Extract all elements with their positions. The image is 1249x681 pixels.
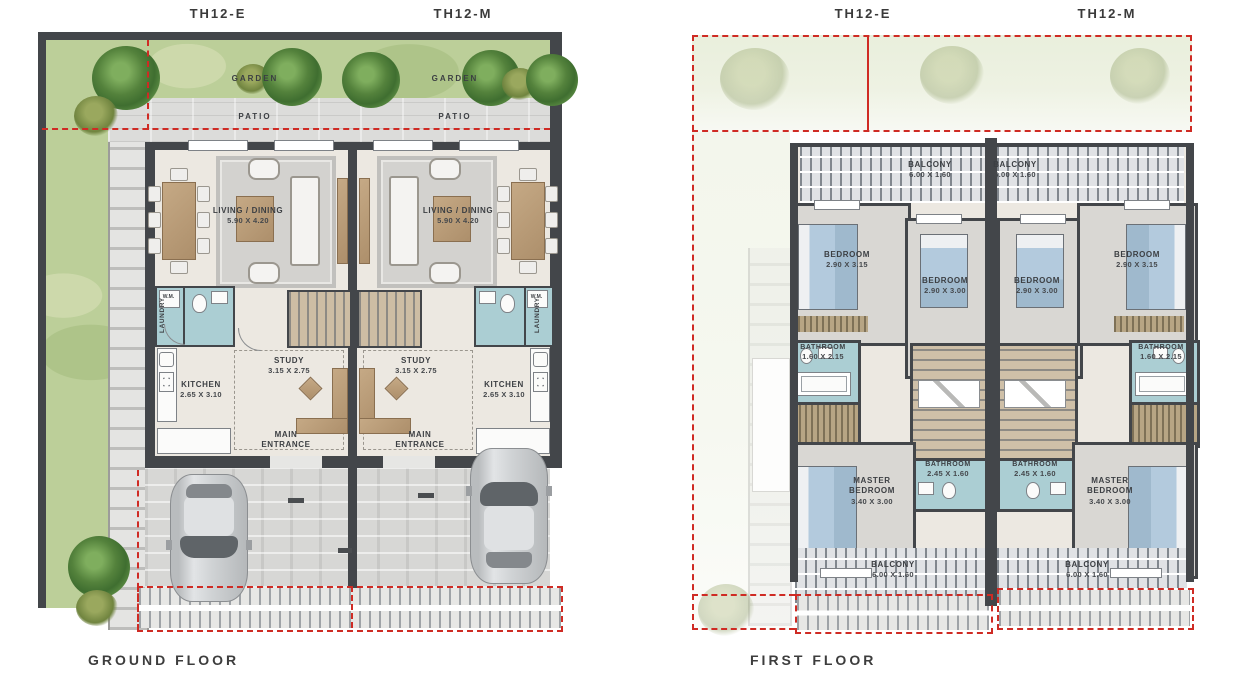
window xyxy=(1124,200,1170,210)
unit-title-first-right: TH12-M xyxy=(1072,6,1142,21)
room-dims: 1.60 X 2.15 xyxy=(786,352,860,362)
palm-tree-icon xyxy=(342,52,400,108)
room-label-study: STUDY 3.15 X 2.75 xyxy=(249,356,329,376)
window xyxy=(274,140,334,151)
window xyxy=(916,214,962,224)
room-name: BALCONY xyxy=(993,160,1037,169)
wall-top xyxy=(46,32,562,40)
wm-label: W.M. xyxy=(527,294,546,301)
window xyxy=(373,140,433,151)
room-label-bathroom-center: BATHROOM 2.45 X 1.60 xyxy=(999,460,1071,479)
room-label-bedroom-corner: BEDROOM 2.90 X 3.15 xyxy=(802,250,892,270)
room-dims: 2.45 X 1.60 xyxy=(912,469,984,479)
sink xyxy=(211,291,228,304)
room-name: BEDROOM xyxy=(1114,250,1160,259)
dining-chair xyxy=(519,168,537,181)
kitchen-counter xyxy=(157,428,231,454)
room-dims: 1.60 X 2.15 xyxy=(1124,352,1198,362)
room-dims: 6.00 X 1.60 xyxy=(885,170,975,180)
setback-boundary xyxy=(997,588,1194,630)
dining-chair xyxy=(170,261,188,274)
room-label-garden: GARDEN xyxy=(410,74,500,84)
room-name: MASTER BEDROOM xyxy=(1087,476,1133,495)
room-name: LIVING / DINING xyxy=(213,206,283,215)
stair-landing xyxy=(1004,380,1066,408)
unit-title-ground-left: TH12-E xyxy=(183,6,253,21)
toilet xyxy=(192,294,207,313)
dining-chair xyxy=(148,186,161,202)
car-roof xyxy=(184,496,234,536)
room-dims: 2.90 X 3.00 xyxy=(999,286,1075,296)
toilet xyxy=(500,294,515,313)
room-label-kitchen: KITCHEN 2.65 X 3.10 xyxy=(464,380,544,400)
bed xyxy=(920,234,968,308)
room-label-patio: PATIO xyxy=(410,112,500,122)
dining-chair xyxy=(148,212,161,228)
room-name: BEDROOM xyxy=(922,276,968,285)
floor-plan-sheet: GARDEN GARDEN PATIO PATIO LIVING / DININ… xyxy=(0,0,1249,681)
armchair xyxy=(429,158,461,180)
room-label-main-entrance: MAIN ENTRANCE xyxy=(260,430,312,451)
car-icon xyxy=(470,448,548,584)
wm-label: W.M. xyxy=(159,294,178,301)
room-label-main-entrance: MAIN ENTRANCE xyxy=(394,430,446,451)
room-label-master-bedroom: MASTER BEDROOM 3.40 X 3.00 xyxy=(1078,476,1142,507)
dining-table xyxy=(162,182,196,260)
dining-chair xyxy=(497,238,510,254)
room-label-living-dining: LIVING / DINING 5.90 X 4.20 xyxy=(408,206,508,226)
palm-tree-icon xyxy=(68,536,130,598)
room-label-bedroom-mid: BEDROOM 2.90 X 3.00 xyxy=(907,276,983,296)
unit-title-first-left: TH12-E xyxy=(828,6,898,21)
window xyxy=(814,200,860,210)
room-dims: 2.90 X 3.15 xyxy=(1092,260,1182,270)
bush-icon xyxy=(74,96,118,136)
room-dims: 2.65 X 3.10 xyxy=(464,390,544,400)
unit-divider-line xyxy=(867,35,869,132)
wall-party xyxy=(985,138,997,606)
bush-icon xyxy=(76,590,118,626)
dining-table xyxy=(511,182,545,260)
car-icon xyxy=(170,474,248,602)
paving-fleck xyxy=(288,498,304,503)
car-windshield xyxy=(480,482,538,506)
plot-boundary-line xyxy=(692,594,795,596)
setback-boundary xyxy=(137,586,563,632)
dining-chair xyxy=(545,186,558,202)
room-dims: 2.45 X 1.60 xyxy=(999,469,1071,479)
room-name: BALCONY xyxy=(1065,560,1109,569)
entrance-gap-left xyxy=(270,456,322,468)
window xyxy=(1020,214,1066,224)
room-label-bathroom-side: BATHROOM 1.60 X 2.15 xyxy=(1124,343,1198,362)
dining-chair xyxy=(519,261,537,274)
plot-boundary-line xyxy=(42,128,550,130)
room-dims: 3.15 X 2.75 xyxy=(376,366,456,376)
car-rear-window xyxy=(186,484,232,498)
paving-fleck xyxy=(338,548,352,553)
caption-first-floor: FIRST FLOOR xyxy=(750,652,876,668)
palm-tree-icon xyxy=(526,54,578,106)
car-rear-window xyxy=(486,552,532,568)
dining-chair xyxy=(545,238,558,254)
room-dims: 3.40 X 3.00 xyxy=(1078,497,1142,507)
car-mirror xyxy=(246,540,252,550)
window xyxy=(459,140,519,151)
plot-boundary-line xyxy=(692,35,694,630)
dining-chair xyxy=(545,212,558,228)
bathtub xyxy=(1135,372,1189,396)
kitchen-sink xyxy=(159,352,174,367)
room-dims: 6.00 X 1.60 xyxy=(1042,570,1132,580)
room-label-patio: PATIO xyxy=(210,112,300,122)
wall-house-right xyxy=(1186,145,1194,582)
room-name: BALCONY xyxy=(871,560,915,569)
room-dims: 2.90 X 3.00 xyxy=(907,286,983,296)
ghost-tree-icon xyxy=(920,46,984,104)
room-label-bathroom-side: BATHROOM 1.60 X 2.15 xyxy=(786,343,860,362)
room-name: BATHROOM xyxy=(1012,461,1058,468)
room-dims: 3.40 X 3.00 xyxy=(840,497,904,507)
ghost-tree-icon xyxy=(1110,48,1170,104)
room-label-master-bedroom: MASTER BEDROOM 3.40 X 3.00 xyxy=(840,476,904,507)
ghost-tree-icon xyxy=(720,48,790,110)
bed xyxy=(1016,234,1064,308)
car-mirror xyxy=(466,486,472,496)
room-dims: 3.15 X 2.75 xyxy=(249,366,329,376)
paving-fleck xyxy=(418,493,434,498)
room-label-kitchen: KITCHEN 2.65 X 3.10 xyxy=(161,380,241,400)
media-console xyxy=(337,178,348,264)
room-label-balcony: BALCONY 6.00 X 1.60 xyxy=(970,160,1060,180)
toilet xyxy=(1026,482,1040,499)
room-name: LIVING / DINING xyxy=(423,206,493,215)
staircase xyxy=(357,290,422,348)
room-dims: 2.65 X 3.10 xyxy=(161,390,241,400)
car-mirror xyxy=(546,486,552,496)
plot-boundary-line xyxy=(692,35,1192,37)
room-name: STUDY xyxy=(401,356,431,365)
room-name: BATHROOM xyxy=(800,344,846,351)
room-name: BEDROOM xyxy=(824,250,870,259)
dining-chair xyxy=(170,168,188,181)
dining-chair xyxy=(497,186,510,202)
room-dims: 6.00 X 1.60 xyxy=(970,170,1060,180)
wall-left-plot xyxy=(38,32,46,608)
window xyxy=(188,140,248,151)
room-label-bedroom-corner: BEDROOM 2.90 X 3.15 xyxy=(1092,250,1182,270)
wardrobe xyxy=(798,316,868,332)
entrance-gap-right xyxy=(383,456,435,468)
sink xyxy=(479,291,496,304)
unit-title-ground-right: TH12-M xyxy=(428,6,498,21)
room-label-balcony: BALCONY 6.00 X 1.60 xyxy=(848,560,938,580)
armchair xyxy=(248,158,280,180)
room-label-balcony: BALCONY 6.00 X 1.60 xyxy=(885,160,975,180)
setback-divider xyxy=(351,586,353,628)
room-label-balcony: BALCONY 6.00 X 1.60 xyxy=(1042,560,1132,580)
room-name: BATHROOM xyxy=(925,461,971,468)
room-name: MASTER BEDROOM xyxy=(849,476,895,495)
dining-chair xyxy=(197,186,210,202)
room-label-study: STUDY 3.15 X 2.75 xyxy=(376,356,456,376)
wardrobe xyxy=(1114,316,1184,332)
bathtub xyxy=(797,372,851,396)
room-label-bathroom-center: BATHROOM 2.45 X 1.60 xyxy=(912,460,984,479)
armchair xyxy=(248,262,280,284)
car-windshield xyxy=(180,536,238,558)
sink xyxy=(1050,482,1066,495)
kitchen-sink xyxy=(533,352,548,367)
setback-boundary xyxy=(795,594,993,634)
room-name: BALCONY xyxy=(908,160,952,169)
plot-boundary-line xyxy=(692,130,1192,132)
room-label-garden: GARDEN xyxy=(210,74,300,84)
ground-floor-plan: GARDEN GARDEN PATIO PATIO LIVING / DININ… xyxy=(38,28,566,636)
media-console xyxy=(359,178,370,264)
ghost-terrace xyxy=(752,358,790,492)
plot-boundary-line xyxy=(692,628,795,630)
room-dims: 5.90 X 4.20 xyxy=(408,216,508,226)
car-roof xyxy=(484,506,534,550)
armchair xyxy=(429,262,461,284)
plot-boundary-line xyxy=(147,40,149,130)
caption-ground-floor: GROUND FLOOR xyxy=(88,652,239,668)
room-name: KITCHEN xyxy=(181,380,221,389)
room-name: STUDY xyxy=(274,356,304,365)
stair-landing xyxy=(918,380,980,408)
toilet xyxy=(942,482,956,499)
room-name: BATHROOM xyxy=(1138,344,1184,351)
car-mirror xyxy=(166,540,172,550)
room-name: BEDROOM xyxy=(1014,276,1060,285)
dining-chair xyxy=(148,238,161,254)
room-name: KITCHEN xyxy=(484,380,524,389)
room-label-living-dining: LIVING / DINING 5.90 X 4.20 xyxy=(198,206,298,226)
staircase xyxy=(287,290,352,348)
room-dims: 5.90 X 4.20 xyxy=(198,216,298,226)
wall-house-left xyxy=(790,145,798,582)
dining-chair xyxy=(197,238,210,254)
wall-party-driveway xyxy=(348,468,357,588)
room-dims: 6.00 X 1.60 xyxy=(848,570,938,580)
plot-boundary-line xyxy=(1190,35,1192,132)
room-label-bedroom-mid: BEDROOM 2.90 X 3.00 xyxy=(999,276,1075,296)
room-dims: 2.90 X 3.15 xyxy=(802,260,892,270)
first-floor-plan: BALCONY 6.00 X 1.60 BALCONY 6.00 X 1.60 … xyxy=(690,28,1202,636)
sink xyxy=(918,482,934,495)
